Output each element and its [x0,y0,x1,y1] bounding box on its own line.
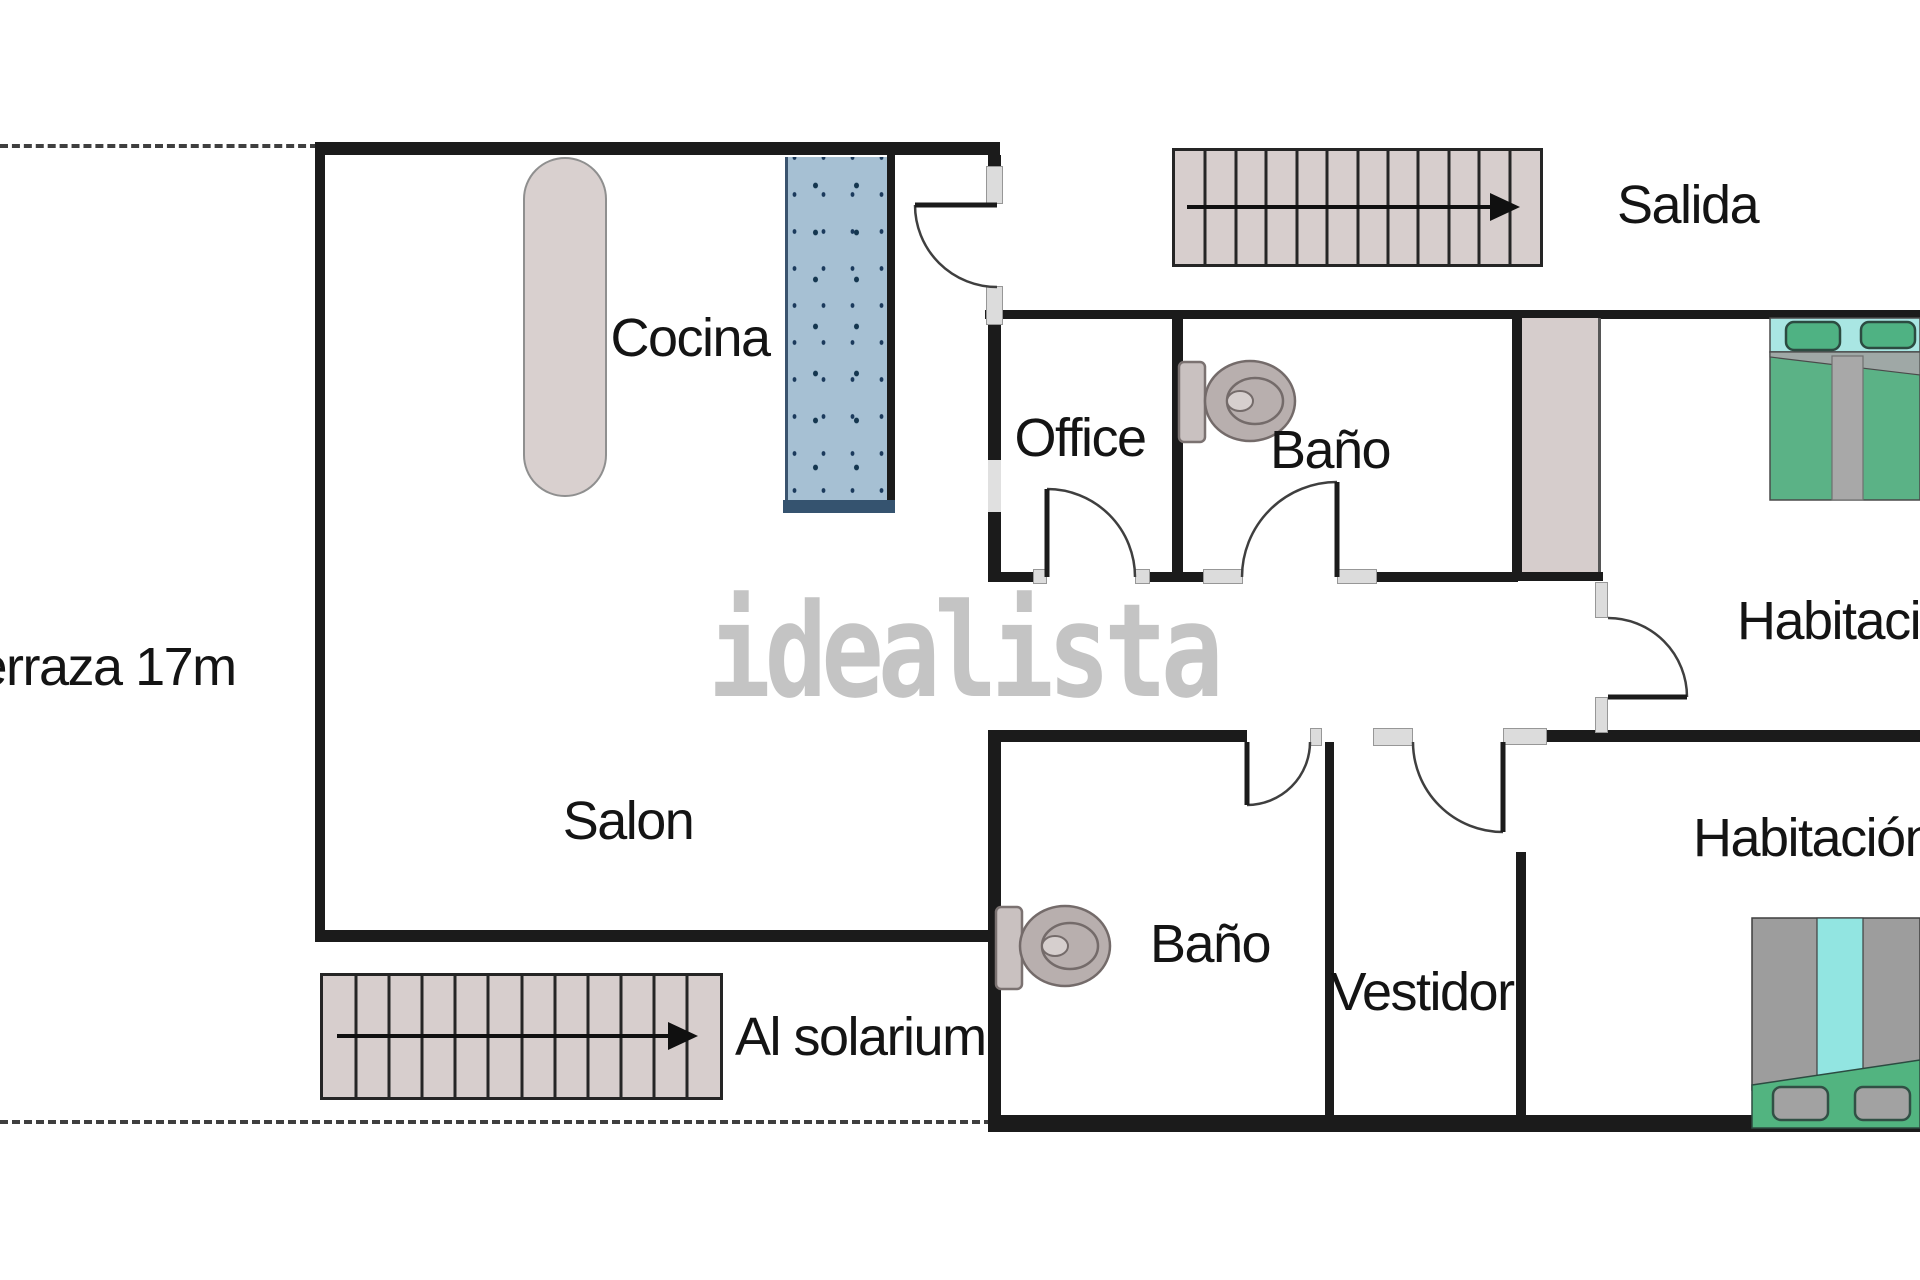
bed-bottom-icon [1752,918,1920,1128]
stairs-top-arrow-icon [1490,193,1520,221]
room-label-habitacion-bottom: Habitación [1693,811,1920,865]
glass-partition-icon [785,157,887,502]
room-label-salon: Salon [563,794,694,848]
glass-partition-sill [783,500,895,513]
label-salida: Salida [1617,178,1758,232]
bano-top-door-arc [1242,482,1337,577]
stairs-bottom-arrow-icon [668,1022,698,1050]
vestidor-door-arc [1413,742,1503,832]
label-al-solarium: Al solarium [735,1010,986,1064]
bed-top-icon [1770,318,1920,500]
room-label-vestidor: Vestidor [1330,965,1513,1019]
habitacion-top-door-arc [1608,618,1687,697]
floorplan-canvas: { "watermark": { "text": "idealista" }, … [0,0,1920,1280]
room-label-office: Office [1014,411,1145,465]
room-label-habitacion-top: Habitación [1737,594,1920,648]
stairs-bottom-arrow-line [337,1034,670,1038]
toilet-bottom-icon [993,903,1115,993]
room-label-bano-bottom: Baño [1150,917,1270,971]
idealista-watermark: idealista [708,586,1218,716]
stairs-top-arrow-line [1187,205,1492,209]
office-door-arc [1047,489,1135,577]
room-label-cocina: Cocina [610,311,769,365]
room-label-bano-top: Baño [1270,423,1390,477]
kitchen-counter-icon [523,157,607,497]
entry-door-arc [915,205,997,287]
room-label-terraza: Terraza 17m [0,640,236,694]
bano-bottom-door-arc [1247,742,1310,805]
